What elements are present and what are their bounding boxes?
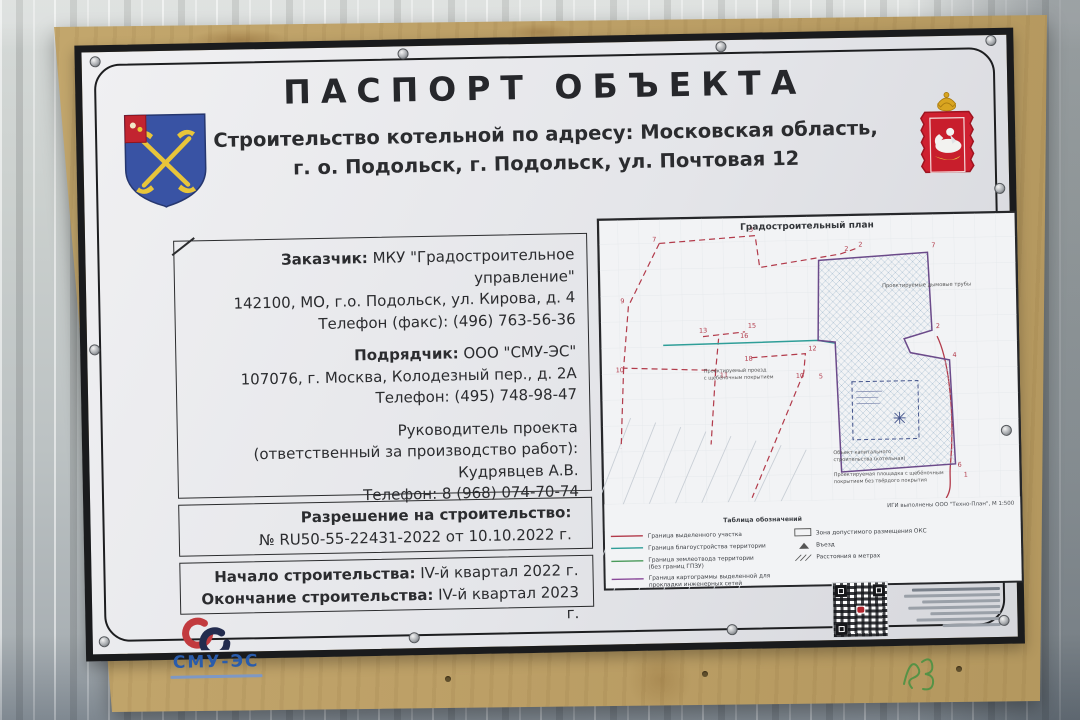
plan-point: 10 [616,366,624,374]
plan-point: 16 [740,332,748,340]
legend-header: Таблица обозначений [723,515,802,525]
mounting-screw-icon [727,624,738,635]
qr-finder-icon [873,584,885,596]
plan-note-road-1: Проектируемый проезд [704,366,767,374]
mounting-screw-icon [99,636,110,647]
plan-point: 7 [652,236,656,244]
plan-point: 2 [936,322,940,330]
customer-name: МКУ "Градостроительное управление" [372,245,575,286]
plan-point: 18 [744,355,752,363]
plan-point: 2 [844,245,848,253]
photo-scene: ПАСПОРТ ОБЪЕКТА Строительство котельной … [0,0,1080,720]
plan-point: 12 [808,344,816,352]
drill-hole [956,666,962,672]
plan-point: 5 [819,372,823,380]
site-plan-drawing: 7 3 2 2 9 15 16 13 10 11 18 12 10 5 7 2 [597,211,1024,591]
mounting-screw-icon [715,41,726,52]
plan-point: 9 [620,297,624,305]
drill-hole [445,676,451,682]
mounting-screw-icon [985,35,996,46]
plan-point: 13 [699,327,707,335]
legend-item-3b: (без границ ГПЗУ) [648,564,703,571]
site-plan: 7 3 2 2 9 15 16 13 10 11 18 12 10 5 7 2 [597,211,1024,591]
mounting-screw-icon [409,632,420,643]
mounting-screw-icon [90,56,101,67]
mounting-screw-icon [994,183,1005,194]
qr-center-mark [856,606,865,614]
plan-point: 10 [796,372,804,380]
moscow-oblast-coat-of-arms-icon [902,89,992,193]
plan-note-object-1: Объект капитального [833,449,891,456]
plan-point: 4 [952,351,956,359]
qr-finder-icon [835,585,847,597]
qr-finder-icon [836,623,848,635]
customer-label: Заказчик: [281,249,368,269]
logo-name: СМУ-ЭС [161,651,271,673]
customer-contractor-box: Заказчик: МКУ "Градостроительное управле… [173,233,592,499]
contractor-label: Подрядчик: [354,344,459,364]
smu-es-logo: СМУ-ЭС [160,615,271,679]
permit-box: Разрешение на строительство: № RU50-55-2… [178,497,593,557]
qr-code-icon [832,581,889,638]
plan-point: 15 [748,322,756,330]
podolsk-coat-of-arms-icon [121,112,211,210]
dates-box: Начало строительства: IV-й квартал 2022 … [179,555,594,615]
mounting-screw-icon [998,615,1009,626]
plan-point: 7 [931,241,935,249]
legend-right-3: Расстояния в метрах [816,553,881,560]
plan-point: 2 [858,241,862,249]
legend-right-2: Въезд [816,542,835,548]
contractor-name: ООО "СМУ-ЭС" [463,342,576,362]
plan-point: 1 [964,471,968,479]
plan-point: 6 [957,461,961,469]
fine-print-lines [900,587,1001,631]
infinity-logo-icon [179,615,252,650]
passport-banner: ПАСПОРТ ОБЪЕКТА Строительство котельной … [74,28,1025,662]
green-marking [898,650,940,698]
drill-hole [702,671,708,677]
